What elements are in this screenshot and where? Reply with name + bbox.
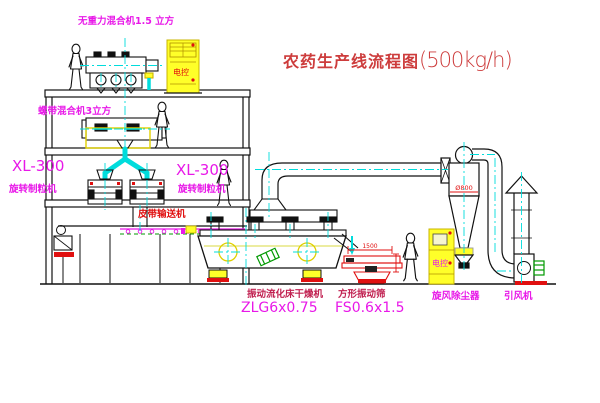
indicator-lamp-icon xyxy=(448,261,451,264)
label-granulator-right-name: 旋转制粒机 xyxy=(178,185,226,195)
label-mid-mixer: 螺带混合机3立方 xyxy=(38,107,111,117)
label-granulator-left-name: 旋转制粒机 xyxy=(9,185,57,195)
label-screen-model: FS0.6x1.5 xyxy=(335,301,405,315)
indicator-lamp-icon xyxy=(191,78,194,81)
label-belt-conveyor: 皮带输送机 xyxy=(138,210,186,220)
worker-figure xyxy=(403,233,418,281)
flow-diagram-canvas: 电控 xyxy=(0,0,600,403)
cabinet-top-text: 电控 xyxy=(173,67,189,77)
worker-figure xyxy=(69,44,83,89)
label-top-mixer: 无重力混合机1.5 立方 xyxy=(78,17,174,27)
screen-length-dim: 1500 xyxy=(362,243,377,250)
page-title: 农药生产线流程图(500kg/h) xyxy=(283,48,512,72)
label-granulator-left-model: XL-300 xyxy=(12,159,64,174)
label-granulator-right-model: XL-300 xyxy=(176,163,228,178)
fan-motor-icon xyxy=(534,261,544,275)
cabinet-right-text: 电控 xyxy=(432,258,448,268)
indicator-lamp-icon xyxy=(448,231,451,234)
exhaust-duct xyxy=(262,158,450,199)
label-dryer-model: ZLG6x0.75 xyxy=(241,301,318,315)
fluid-bed-dryer xyxy=(181,199,346,282)
mid-mixer-machine xyxy=(82,118,166,148)
label-cyclone: 旋风除尘器 xyxy=(432,292,480,302)
fan-base xyxy=(515,281,547,285)
control-cabinet-right: 电控 xyxy=(429,229,454,284)
label-screen-name: 方形振动筛 xyxy=(338,290,386,300)
label-dryer-name: 振动流化床干燥机 xyxy=(247,290,323,300)
label-induced-fan: 引风机 xyxy=(504,292,533,302)
title-capacity: (500kg/h) xyxy=(419,48,512,72)
indicator-lamp-icon xyxy=(191,43,194,46)
induced-draft-fan xyxy=(514,254,547,285)
worker-figure xyxy=(155,102,169,147)
title-chinese: 农药生产线流程图 xyxy=(283,52,419,71)
flow-arrow-icon xyxy=(349,248,355,255)
top-mixer-machine xyxy=(86,52,158,93)
control-cabinet-top: 电控 xyxy=(164,40,202,93)
